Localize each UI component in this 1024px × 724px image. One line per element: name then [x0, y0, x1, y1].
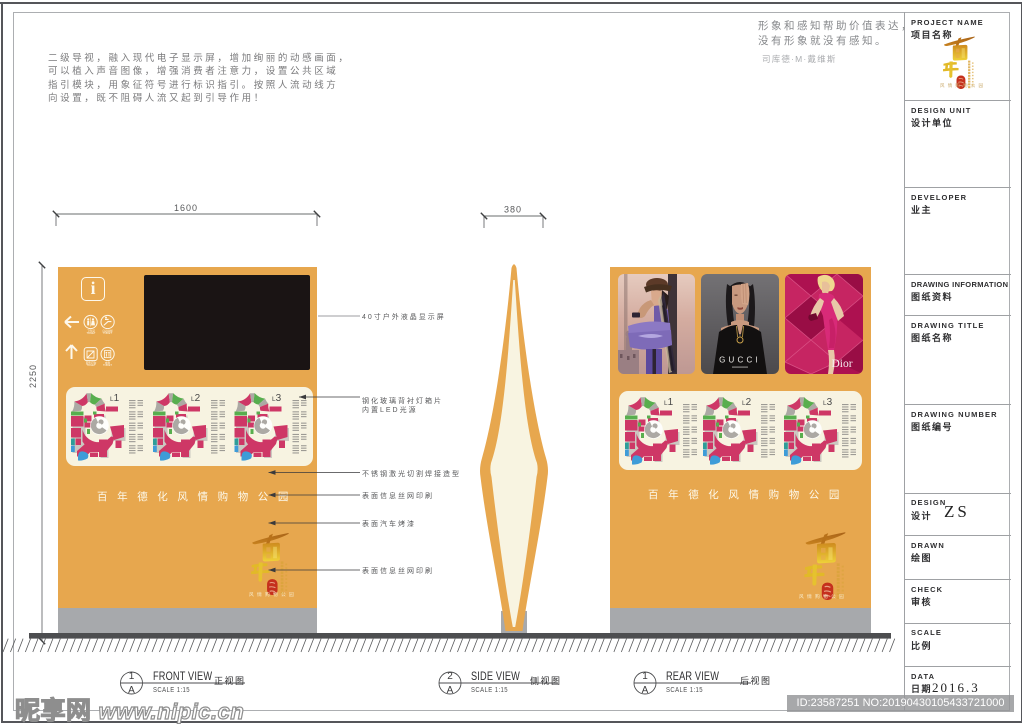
svg-text:2250: 2250: [28, 364, 38, 388]
svg-text:380: 380: [504, 205, 522, 215]
svg-text:1600: 1600: [174, 203, 198, 213]
